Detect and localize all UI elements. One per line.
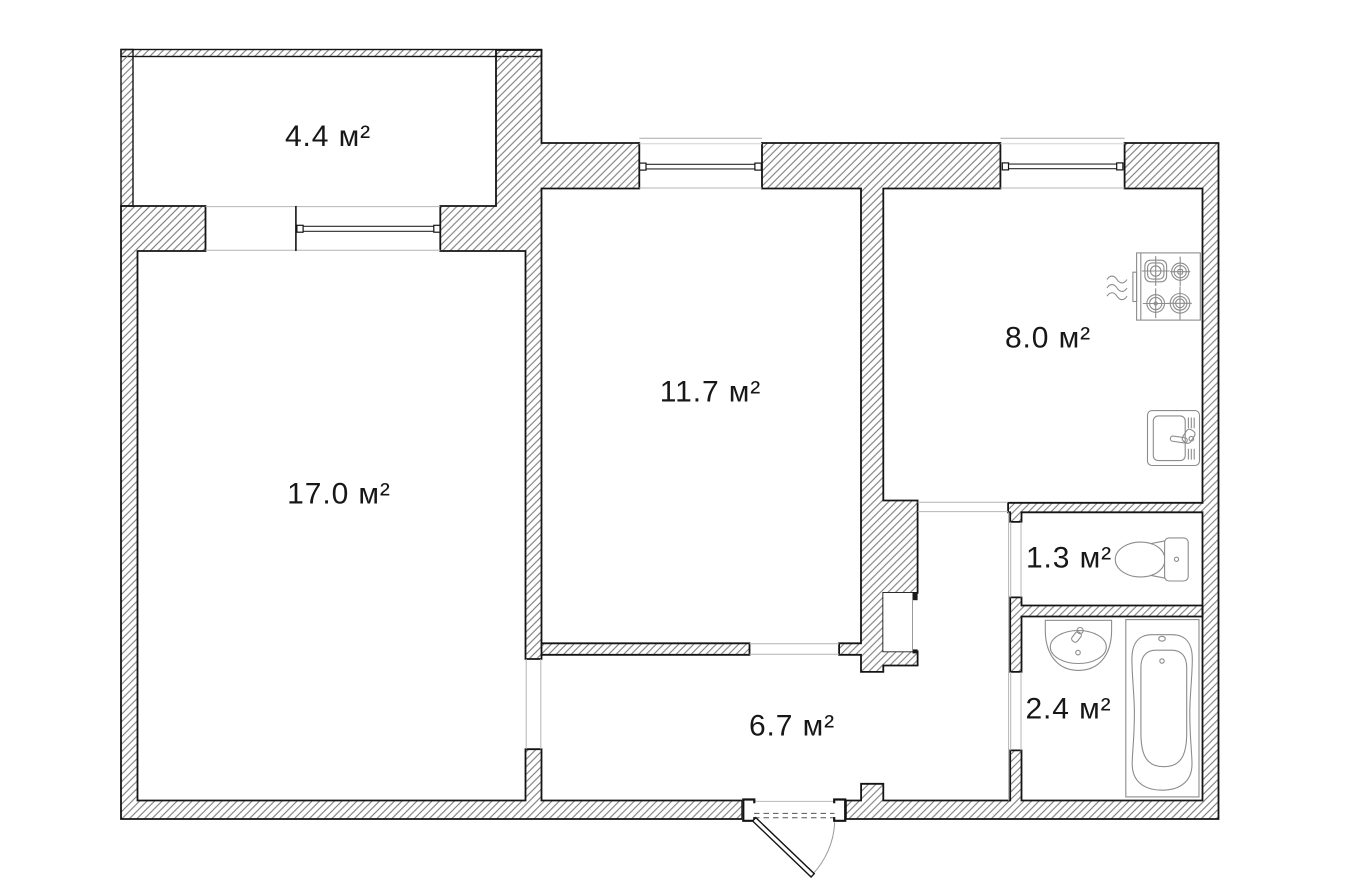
svg-text:11.7 м²: 11.7 м² (660, 376, 761, 409)
svg-text:6.7 м²: 6.7 м² (749, 710, 835, 743)
svg-text:8.0 м²: 8.0 м² (1005, 322, 1091, 355)
svg-text:1.3 м²: 1.3 м² (1026, 542, 1112, 575)
svg-text:17.0 м²: 17.0 м² (287, 478, 391, 511)
svg-text:2.4 м²: 2.4 м² (1025, 693, 1111, 726)
svg-text:4.4 м²: 4.4 м² (285, 120, 371, 153)
